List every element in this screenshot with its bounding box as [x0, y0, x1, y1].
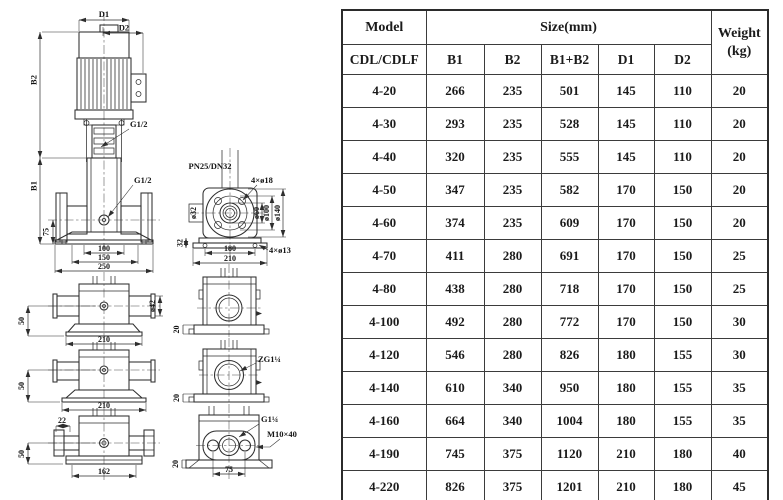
dim-dia100: ø100	[262, 205, 271, 221]
base-view-3: 22 50 162	[17, 406, 160, 480]
side-view-2: ZG1¼ 20	[172, 338, 281, 403]
dim-b2: B2	[29, 75, 39, 85]
motor-fan-cover-step	[100, 25, 118, 32]
table-row: 4-10049228077217015030	[342, 306, 768, 339]
value-cell: 150	[654, 273, 711, 306]
dim-50-bv1: 50	[17, 317, 26, 325]
dim-210-flange: 210	[224, 254, 236, 263]
spec-table: Model Size(mm) Weight (kg) CDL/CDLF B1B2…	[341, 9, 769, 500]
value-cell: 375	[484, 438, 541, 471]
value-cell: 45	[711, 471, 768, 500]
dim-75: 75	[42, 228, 51, 236]
dim-50-bv2: 50	[17, 382, 26, 390]
label-pn25-dn32: PN25/DN32	[189, 161, 232, 171]
dim-dia32: ø32	[189, 207, 198, 219]
label-4x13: 4×ø13	[269, 245, 291, 255]
model-cell: 4-80	[342, 273, 426, 306]
model-cell: 4-40	[342, 141, 426, 174]
value-cell: 609	[541, 207, 598, 240]
dim-b1: B1	[29, 181, 39, 191]
value-cell: 110	[654, 108, 711, 141]
side-view-1: 20	[172, 264, 269, 337]
terminal-box	[131, 74, 146, 102]
table-row: 4-7041128069117015025	[342, 240, 768, 273]
model-cell: 4-70	[342, 240, 426, 273]
model-cell: 4-20	[342, 75, 426, 108]
value-cell: 35	[711, 372, 768, 405]
right-flange	[141, 193, 152, 242]
model-cell: 4-190	[342, 438, 426, 471]
value-cell: 30	[711, 339, 768, 372]
value-cell: 35	[711, 405, 768, 438]
value-cell: 110	[654, 141, 711, 174]
dim-250: 250	[98, 262, 110, 271]
label-zg114: ZG1¼	[258, 354, 281, 364]
dim-50-bv3: 50	[17, 450, 26, 458]
value-cell: 180	[654, 471, 711, 500]
dim-100: 100	[98, 244, 110, 253]
dim-162: 162	[98, 467, 110, 476]
model-cell: 4-220	[342, 471, 426, 500]
dim-20-botv: 20	[171, 460, 180, 468]
table-row: 4-3029323552814511020	[342, 108, 768, 141]
flange-top-view: PN25/DN32 ø32 4×ø18 ø60 ø100 ø140 32 180	[176, 148, 291, 266]
value-cell: 180	[598, 372, 654, 405]
table-row: 4-12054628082618015530	[342, 339, 768, 372]
value-cell: 210	[598, 471, 654, 500]
value-cell: 374	[426, 207, 484, 240]
label-g12-port: G1/2	[134, 175, 151, 185]
header-model-sub: CDL/CDLF	[342, 45, 426, 75]
value-cell: 30	[711, 306, 768, 339]
label-g12-coupling: G1/2	[130, 119, 147, 129]
table-row: 4-14061034095018015535	[342, 372, 768, 405]
value-cell: 235	[484, 108, 541, 141]
value-cell: 25	[711, 273, 768, 306]
value-cell: 20	[711, 108, 768, 141]
value-cell: 170	[598, 306, 654, 339]
value-cell: 145	[598, 108, 654, 141]
dim-32: 32	[176, 239, 185, 247]
value-cell: 718	[541, 273, 598, 306]
label-4x18: 4×ø18	[251, 175, 273, 185]
label-g114: G1¼	[261, 414, 278, 424]
table-row: 4-5034723558217015020	[342, 174, 768, 207]
value-cell: 826	[426, 471, 484, 500]
value-cell: 110	[654, 75, 711, 108]
pump-technical-drawing: D1 D2 G1/2	[0, 0, 345, 500]
value-cell: 150	[654, 174, 711, 207]
value-cell: 582	[541, 174, 598, 207]
value-cell: 1120	[541, 438, 598, 471]
value-cell: 235	[484, 174, 541, 207]
pump-spec-sheet: D1 D2 G1/2	[0, 0, 783, 500]
model-cell: 4-50	[342, 174, 426, 207]
table-row: 4-8043828071817015025	[342, 273, 768, 306]
header-size: Size(mm)	[426, 10, 711, 45]
value-cell: 170	[598, 207, 654, 240]
value-cell: 528	[541, 108, 598, 141]
table-row: 4-160664340100418015535	[342, 405, 768, 438]
value-cell: 155	[654, 372, 711, 405]
base-view-2: 50 210	[17, 340, 160, 412]
model-cell: 4-60	[342, 207, 426, 240]
front-view: D1 D2 G1/2	[29, 9, 161, 273]
value-cell: 20	[711, 174, 768, 207]
value-cell: 1004	[541, 405, 598, 438]
table-row: 4-2026623550114511020	[342, 75, 768, 108]
value-cell: 266	[426, 75, 484, 108]
size-col-header: B1	[426, 45, 484, 75]
header-model: Model	[342, 10, 426, 45]
size-col-header: B1+B2	[541, 45, 598, 75]
value-cell: 950	[541, 372, 598, 405]
dim-20-sv2: 20	[172, 394, 181, 402]
value-cell: 235	[484, 75, 541, 108]
value-cell: 501	[541, 75, 598, 108]
dim-20-sv1: 20	[172, 326, 181, 334]
label-m10x40: M10×40	[267, 429, 297, 439]
value-cell: 772	[541, 306, 598, 339]
value-cell: 280	[484, 273, 541, 306]
value-cell: 293	[426, 108, 484, 141]
table-row: 4-190745375112021018040	[342, 438, 768, 471]
left-flange	[56, 193, 67, 242]
dim-dia60: ø60	[252, 207, 261, 219]
base-bottom-view: G1¼ M10×40 20 75	[171, 404, 297, 480]
dim-22: 22	[58, 416, 66, 425]
value-cell: 170	[598, 174, 654, 207]
value-cell: 170	[598, 240, 654, 273]
value-cell: 235	[484, 141, 541, 174]
value-cell: 340	[484, 372, 541, 405]
value-cell: 20	[711, 207, 768, 240]
value-cell: 610	[426, 372, 484, 405]
value-cell: 25	[711, 240, 768, 273]
value-cell: 180	[598, 339, 654, 372]
value-cell: 170	[598, 273, 654, 306]
value-cell: 664	[426, 405, 484, 438]
value-cell: 546	[426, 339, 484, 372]
dim-d2: D2	[119, 23, 129, 33]
value-cell: 492	[426, 306, 484, 339]
size-col-header: B2	[484, 45, 541, 75]
table-row: 4-4032023555514511020	[342, 141, 768, 174]
model-cell: 4-140	[342, 372, 426, 405]
value-cell: 340	[484, 405, 541, 438]
dim-75-botv: 75	[225, 465, 233, 474]
value-cell: 180	[598, 405, 654, 438]
model-cell: 4-120	[342, 339, 426, 372]
value-cell: 555	[541, 141, 598, 174]
dim-dia140: ø140	[273, 205, 282, 221]
table-row: 4-6037423560917015020	[342, 207, 768, 240]
value-cell: 145	[598, 75, 654, 108]
value-cell: 438	[426, 273, 484, 306]
spec-table-body: 4-20266235501145110204-30293235528145110…	[342, 75, 768, 500]
value-cell: 155	[654, 339, 711, 372]
dim-dia42: ø42	[148, 300, 157, 312]
table-row: 4-220826375120121018045	[342, 471, 768, 500]
value-cell: 210	[598, 438, 654, 471]
model-cell: 4-160	[342, 405, 426, 438]
base-view-1: 50 210 ø42	[17, 272, 163, 346]
value-cell: 145	[598, 141, 654, 174]
dim-150: 150	[98, 253, 110, 262]
model-cell: 4-100	[342, 306, 426, 339]
value-cell: 280	[484, 240, 541, 273]
size-col-header: D1	[598, 45, 654, 75]
size-col-header: D2	[654, 45, 711, 75]
value-cell: 20	[711, 141, 768, 174]
dim-180: 180	[224, 244, 236, 253]
value-cell: 320	[426, 141, 484, 174]
value-cell: 280	[484, 339, 541, 372]
value-cell: 375	[484, 471, 541, 500]
value-cell: 235	[484, 207, 541, 240]
dim-d1: D1	[99, 9, 109, 19]
value-cell: 40	[711, 438, 768, 471]
value-cell: 20	[711, 75, 768, 108]
value-cell: 180	[654, 438, 711, 471]
header-weight-line2: (kg)	[712, 43, 768, 61]
value-cell: 150	[654, 306, 711, 339]
header-weight-line1: Weight	[712, 25, 768, 43]
value-cell: 691	[541, 240, 598, 273]
value-cell: 411	[426, 240, 484, 273]
value-cell: 347	[426, 174, 484, 207]
value-cell: 150	[654, 240, 711, 273]
value-cell: 1201	[541, 471, 598, 500]
model-cell: 4-30	[342, 108, 426, 141]
header-weight: Weight (kg)	[711, 10, 768, 75]
value-cell: 280	[484, 306, 541, 339]
value-cell: 826	[541, 339, 598, 372]
value-cell: 150	[654, 207, 711, 240]
value-cell: 155	[654, 405, 711, 438]
value-cell: 745	[426, 438, 484, 471]
